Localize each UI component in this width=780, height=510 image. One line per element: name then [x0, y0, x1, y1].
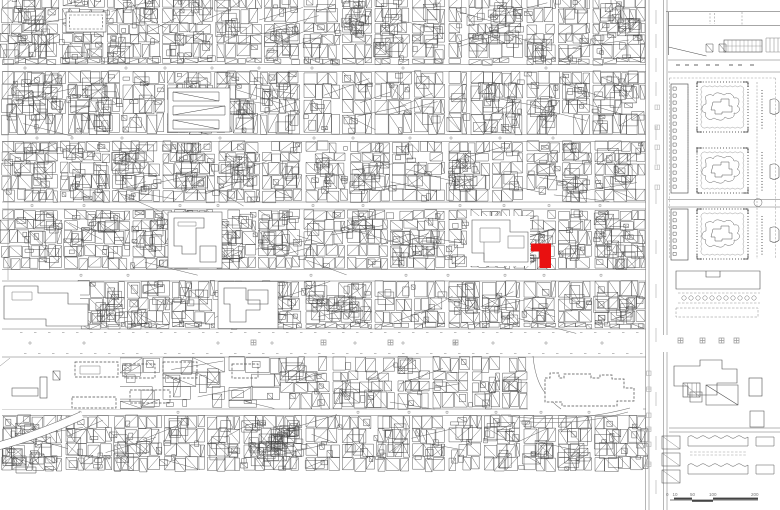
- svg-text:50: 50: [690, 492, 696, 497]
- svg-text:10: 10: [673, 492, 679, 497]
- svg-text:100: 100: [709, 492, 717, 497]
- svg-text:200: 200: [751, 492, 759, 497]
